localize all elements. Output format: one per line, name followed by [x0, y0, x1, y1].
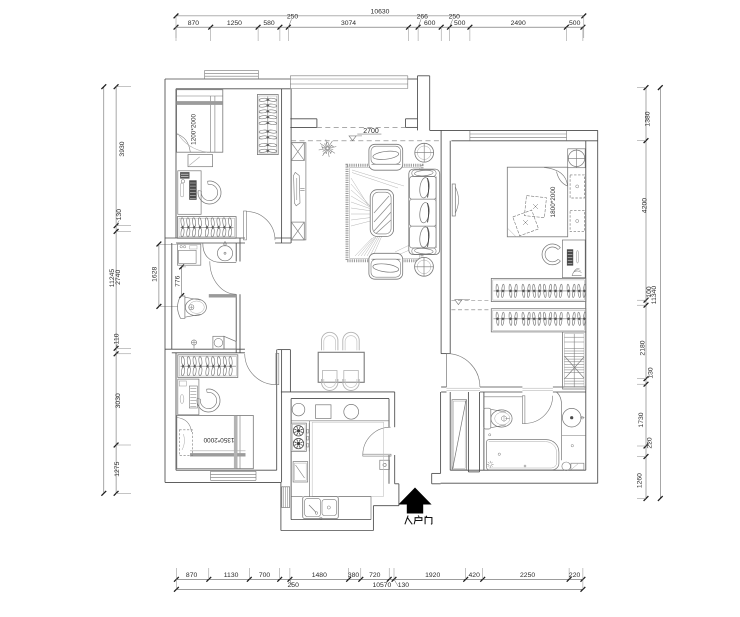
svg-text:1730: 1730 — [638, 412, 645, 427]
svg-text:2490: 2490 — [511, 20, 526, 27]
svg-text:266: 266 — [417, 13, 429, 20]
svg-text:2740: 2740 — [115, 270, 122, 285]
svg-text:250: 250 — [449, 13, 461, 20]
svg-text:10570: 10570 — [372, 582, 391, 589]
svg-text:1480: 1480 — [312, 572, 327, 579]
svg-text:1800*2000: 1800*2000 — [550, 186, 557, 217]
svg-text:500: 500 — [454, 20, 466, 27]
svg-text:130: 130 — [647, 367, 654, 379]
svg-text:1350*2000: 1350*2000 — [203, 436, 234, 443]
svg-text:776: 776 — [174, 275, 181, 287]
svg-text:220: 220 — [569, 572, 581, 579]
svg-text:1260: 1260 — [637, 473, 644, 488]
svg-text:100: 100 — [646, 286, 653, 298]
svg-text:1920: 1920 — [425, 572, 440, 579]
svg-text:1130: 1130 — [224, 572, 239, 579]
svg-text:500: 500 — [569, 20, 581, 27]
svg-text:130: 130 — [398, 582, 410, 589]
svg-text:250: 250 — [288, 582, 300, 589]
svg-text:1250: 1250 — [227, 20, 242, 27]
svg-text:130: 130 — [116, 209, 123, 221]
svg-text:3930: 3930 — [119, 141, 126, 156]
svg-text:700: 700 — [259, 572, 271, 579]
svg-text:3074: 3074 — [341, 20, 356, 27]
svg-text:3030: 3030 — [115, 393, 122, 408]
svg-text:220: 220 — [647, 437, 654, 449]
svg-text:420: 420 — [469, 572, 481, 579]
svg-text:1200*2000: 1200*2000 — [190, 113, 197, 144]
svg-text:4200: 4200 — [641, 198, 648, 213]
svg-text:2180: 2180 — [639, 340, 646, 355]
svg-text:1380: 1380 — [644, 111, 651, 126]
svg-text:870: 870 — [186, 572, 198, 579]
svg-text:250: 250 — [287, 13, 299, 20]
svg-text:580: 580 — [263, 20, 275, 27]
svg-text:110: 110 — [113, 333, 120, 344]
svg-text:380: 380 — [348, 572, 360, 579]
svg-text:10630: 10630 — [371, 9, 390, 16]
svg-text:600: 600 — [424, 20, 436, 27]
svg-text:1275: 1275 — [114, 461, 121, 476]
svg-text:720: 720 — [369, 572, 381, 579]
svg-text:870: 870 — [188, 20, 200, 27]
svg-text:1628: 1628 — [152, 267, 159, 282]
svg-text:2250: 2250 — [520, 572, 535, 579]
